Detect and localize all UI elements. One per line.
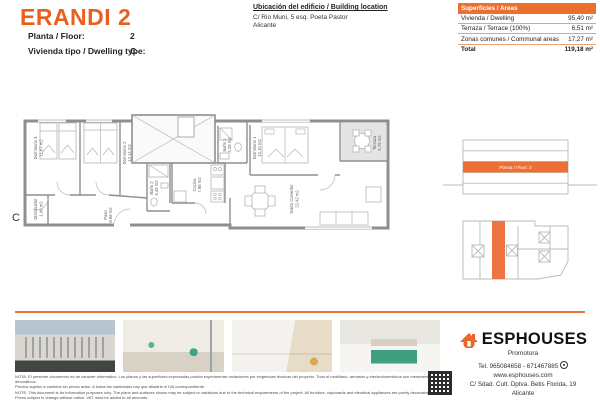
photo-building-exterior (15, 320, 115, 372)
building-elevation-diagram: Planta / Floor: 2 (440, 133, 600, 208)
stair-core (132, 115, 215, 163)
room-area-salon-comedor: 22.42 m2 (295, 190, 300, 208)
disclaimer-es-line1: NOTA: El presente documento es de caráct… (15, 374, 439, 384)
areas-table-header: Superficies / Areas (458, 3, 596, 14)
dwelling-type-value: C (130, 46, 136, 56)
floor-plan: Dormitorio 3 11.67 m2 Dormitorio 2 12.14… (10, 103, 440, 318)
floor-label: Planta / Floor: (28, 31, 85, 41)
brochure-page: ERANDI 2 Planta / Floor: 2 Vivienda tipo… (0, 0, 600, 400)
floor-band-label: Planta / Floor: 2 (499, 165, 532, 170)
brand-address: C/ Sdad. Cult. Dptva. Betis Florida, 19 (448, 380, 598, 389)
brand-phone: Tel. 965084658 - 671467885 (448, 361, 598, 371)
esphouses-house-icon (459, 331, 479, 348)
table-total-row: Total 119,18 m² (458, 45, 596, 55)
disclaimer-en-line2: Prices subject to change without notice.… (15, 395, 439, 400)
room-area-distribuidor: 1.46 m2 (39, 201, 44, 217)
location-title: Ubicación del edificio / Building locati… (253, 4, 388, 11)
terrace-table-icon (353, 130, 371, 152)
whatsapp-icon (560, 361, 568, 369)
bed-icon (40, 123, 76, 159)
area-label: Zonas comunes / Communal areas (461, 36, 559, 43)
room-area-bano-1: 4.29 m2 (227, 137, 232, 153)
orange-divider (15, 311, 585, 313)
brand-city: Alicante (448, 389, 598, 398)
table-row: Terraza / Terrace (100%) 6,51 m² (458, 24, 596, 34)
dwelling-type-letter: C (12, 212, 20, 224)
total-value: 119,18 m² (565, 46, 593, 53)
disclaimer-en-line1: NOTE: This document is for information p… (15, 390, 439, 395)
area-value: 17,27 m² (568, 36, 593, 43)
bed-icon (262, 127, 308, 163)
brand-name: ESPHOUSES (482, 330, 587, 349)
bed-icon (84, 123, 117, 163)
area-value: 95,40 m² (568, 15, 593, 22)
room-label-salon-comedor: Salón Comedor (289, 184, 294, 214)
site-key-plan (440, 213, 600, 298)
photo-strip (15, 320, 440, 372)
area-label: Vivienda / Dwelling (461, 15, 514, 22)
area-value: 6,51 m² (572, 25, 593, 32)
room-area-bano-2: 3.49 m2 (154, 180, 159, 196)
highlighted-unit (492, 221, 505, 279)
floor-value: 2 (130, 31, 135, 41)
room-area-cocina: 7.98 m2 (197, 177, 202, 193)
brand-website: www.esphouses.com (448, 371, 598, 380)
total-label: Total (461, 46, 476, 53)
page-title: ERANDI 2 (20, 4, 131, 31)
photo-living-room (123, 320, 223, 372)
room-area-dormitorio-1: 12.10 m2 (257, 139, 262, 157)
area-label: Terraza / Terrace (100%) (461, 25, 530, 32)
dwelling-type-label: Vivienda tipo / Dwelling type: (28, 46, 145, 56)
table-row: Zonas comunes / Communal areas 17,27 m² (458, 34, 596, 44)
room-area-dormitorio-2: 12.14 m2 (127, 144, 132, 162)
sofa-icon (320, 187, 381, 225)
table-row: Vivienda / Dwelling 95,40 m² (458, 14, 596, 24)
areas-table: Superficies / Areas Vivienda / Dwelling … (458, 3, 596, 55)
room-label-distribuidor: Distribuidor (33, 198, 38, 220)
brand-panel: ESPHOUSES Promotora Tel. 965084658 - 671… (448, 330, 598, 399)
brand-tagline: Promotora (448, 350, 598, 357)
location-city: Alicante (253, 22, 276, 29)
room-area-dormitorio-3: 11.67 m2 (39, 139, 44, 157)
location-street: C/ Rio Muni, 5 esq. Poeta Pastor (253, 14, 348, 21)
room-label-dormitorio-3: Dormitorio 3 (33, 136, 38, 159)
photo-kitchen (232, 320, 332, 372)
dining-table-icon (245, 186, 275, 216)
disclaimer-text: NOTA: El presente documento es de caráct… (15, 374, 439, 400)
photo-bedroom (340, 320, 440, 372)
room-area-terraza: 5.79 m2 (377, 135, 382, 151)
room-area-paso: 8.98 m2 (108, 207, 113, 223)
